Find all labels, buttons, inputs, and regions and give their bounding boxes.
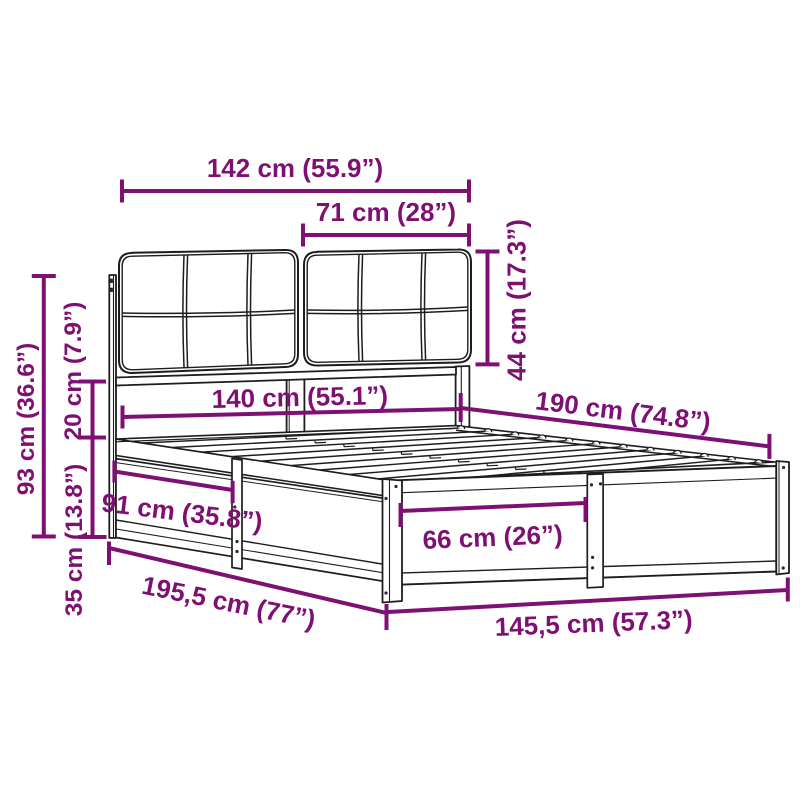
svg-text:71 cm (28”): 71 cm (28”) — [316, 197, 456, 227]
svg-text:66 cm (26”): 66 cm (26”) — [422, 519, 563, 555]
svg-text:140 cm (55.1”): 140 cm (55.1”) — [211, 380, 388, 414]
svg-text:20 cm (7.9”): 20 cm (7.9”) — [60, 302, 87, 441]
svg-text:93 cm (36.6”): 93 cm (36.6”) — [13, 343, 40, 496]
svg-text:142 cm (55.9”): 142 cm (55.9”) — [207, 153, 383, 183]
svg-text:35 cm (13.8”): 35 cm (13.8”) — [61, 464, 88, 617]
svg-text:44 cm (17.3”): 44 cm (17.3”) — [502, 219, 532, 381]
